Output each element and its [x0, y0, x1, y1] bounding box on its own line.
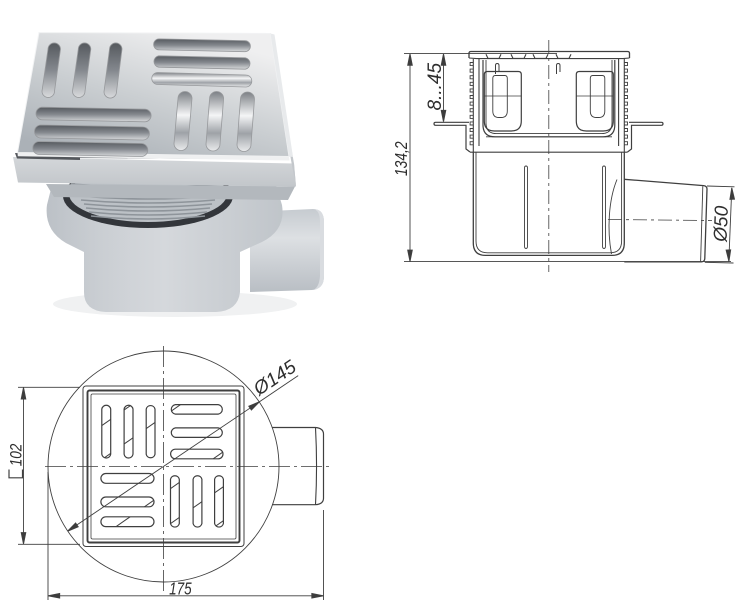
- svg-text:175: 175: [169, 580, 192, 599]
- svg-text:Ø50: Ø50: [710, 205, 732, 243]
- svg-text:134,2: 134,2: [393, 141, 412, 176]
- svg-text:102: 102: [7, 443, 26, 466]
- svg-text:Ø145: Ø145: [249, 357, 300, 401]
- svg-text:8...45: 8...45: [425, 63, 446, 111]
